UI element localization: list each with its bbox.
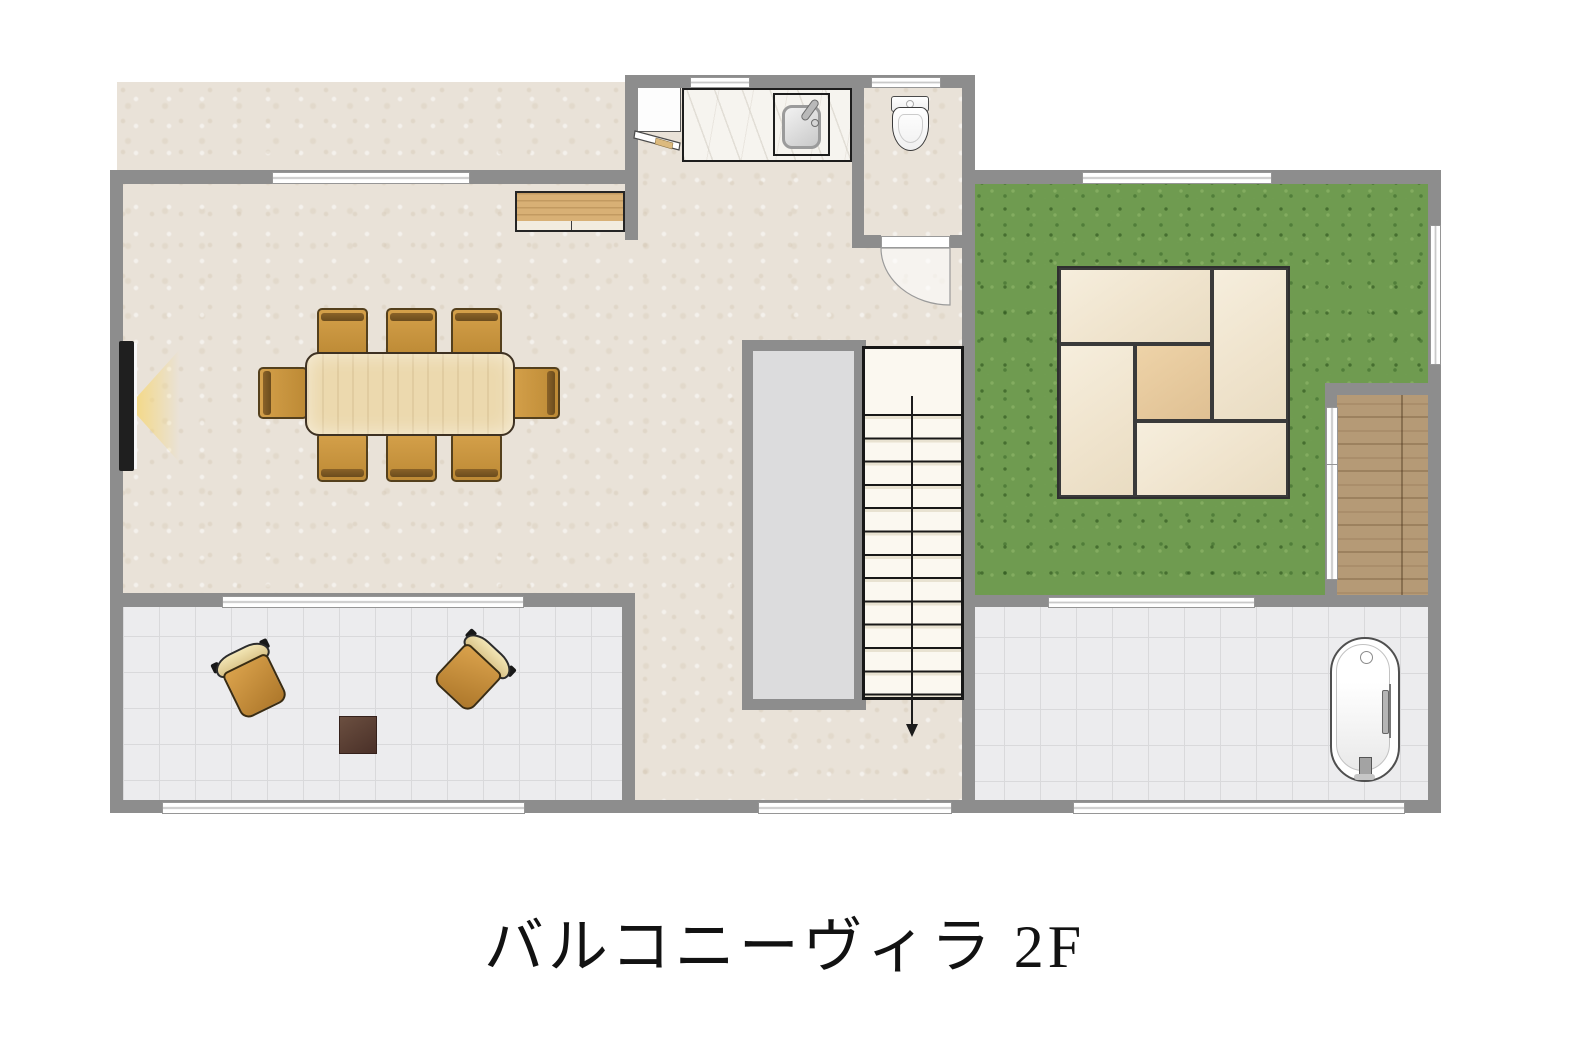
stairwell-void xyxy=(753,351,854,699)
floor-plan-title: バルコニーヴィラ 2F xyxy=(0,898,1569,985)
window xyxy=(222,596,524,608)
stairs-direction-arrow xyxy=(911,396,913,726)
kitchen-faucet-knob xyxy=(811,119,819,127)
tatami-mat xyxy=(1212,268,1288,421)
window xyxy=(1073,802,1405,814)
window xyxy=(1430,225,1441,365)
staircase xyxy=(862,346,964,700)
bathtub-faucet-base xyxy=(1354,774,1375,780)
wall-kitchen-left xyxy=(625,75,638,240)
bathtub-handrail-mount xyxy=(1389,684,1391,738)
tatami-center-mat xyxy=(1135,344,1212,421)
kitchen-sink xyxy=(782,105,821,149)
window xyxy=(690,77,750,88)
wall-toilet-bottom-left xyxy=(852,235,881,248)
dining-chair xyxy=(386,308,437,358)
toilet-door xyxy=(881,236,950,248)
tatami-mat xyxy=(1135,421,1288,497)
window xyxy=(871,77,941,88)
tv-screen xyxy=(134,343,137,469)
tatami-mat xyxy=(1059,268,1212,344)
dining-chair xyxy=(451,308,502,358)
window xyxy=(1048,597,1255,608)
stairs-arrow-head xyxy=(906,724,918,737)
window xyxy=(162,802,525,814)
window xyxy=(272,172,470,184)
wall-toilet-left xyxy=(852,75,864,248)
sideboard-divider xyxy=(571,221,572,230)
closet-sliding-door xyxy=(1326,407,1338,466)
dining-chair xyxy=(317,308,368,358)
closet-wood-floor xyxy=(1331,389,1428,601)
tatami-mat xyxy=(1059,344,1135,497)
dining-table xyxy=(305,352,515,436)
wall-closet-top xyxy=(1325,383,1441,395)
stair-treads xyxy=(865,414,961,697)
dining-chair xyxy=(386,432,437,482)
dining-chair xyxy=(510,367,560,419)
wall-left xyxy=(110,170,123,813)
floor-plan: バルコニーヴィラ 2F xyxy=(0,0,1569,1044)
tatami-platform xyxy=(1057,266,1290,499)
dining-chair xyxy=(317,432,368,482)
tv xyxy=(119,341,134,471)
refrigerator xyxy=(637,85,681,132)
bathtub-drain xyxy=(1360,651,1373,664)
dining-chair xyxy=(258,367,308,419)
wall-balcony-right xyxy=(622,593,635,813)
window xyxy=(1082,172,1272,184)
balcony-floor xyxy=(123,600,622,806)
bathtub-handrail xyxy=(1382,690,1389,734)
window xyxy=(758,802,952,814)
sideboard xyxy=(515,191,625,232)
balcony-side-table xyxy=(339,716,377,754)
closet-sliding-door xyxy=(1326,464,1338,580)
dining-chair xyxy=(451,432,502,482)
sideboard-top xyxy=(517,193,623,221)
